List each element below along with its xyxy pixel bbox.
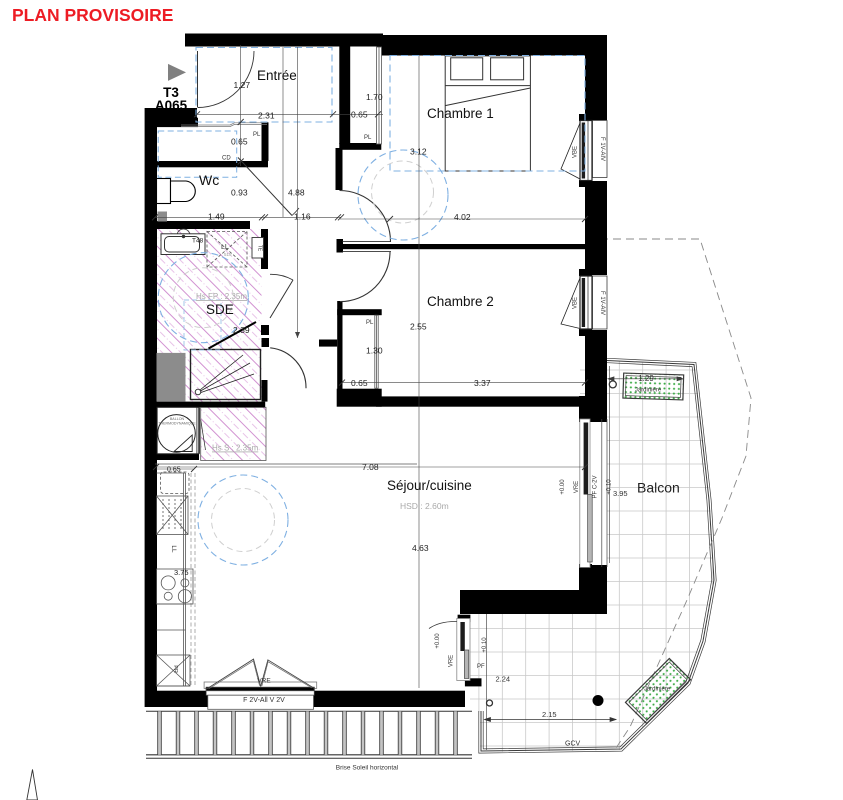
svg-text:Jardinière: Jardinière — [644, 687, 671, 693]
svg-text:PF: PF — [477, 664, 485, 670]
svg-text:515: 515 — [224, 252, 232, 257]
svg-text:3.12: 3.12 — [410, 147, 427, 157]
svg-text:1.30: 1.30 — [366, 346, 383, 356]
svg-text:2.24: 2.24 — [496, 675, 511, 684]
svg-text:1.27: 1.27 — [234, 80, 251, 90]
svg-text:LL: LL — [170, 545, 177, 553]
svg-text:PL: PL — [366, 320, 374, 326]
svg-text:BALLON: BALLON — [170, 417, 185, 421]
svg-text:VBE: VBE — [573, 146, 579, 158]
svg-text:THERMODYNAMIQUE: THERMODYNAMIQUE — [158, 422, 196, 426]
svg-text:Chambre 2: Chambre 2 — [427, 294, 494, 309]
svg-text:Hs S : 2.35m: Hs S : 2.35m — [212, 444, 259, 453]
svg-text:VRE: VRE — [257, 678, 271, 685]
svg-text:HSD : 2.60m: HSD : 2.60m — [400, 501, 449, 511]
svg-text:LL: LL — [221, 244, 229, 251]
svg-text:Hs FP : 2.35m: Hs FP : 2.35m — [196, 292, 247, 301]
svg-text:CD: CD — [222, 156, 231, 162]
svg-text:2.39: 2.39 — [233, 325, 250, 335]
svg-text:PF C-2V: PF C-2V — [593, 475, 599, 498]
svg-text:A065: A065 — [155, 98, 188, 113]
svg-text:2.15: 2.15 — [542, 710, 557, 719]
svg-text:7.08: 7.08 — [362, 462, 379, 472]
svg-text:2.55: 2.55 — [410, 322, 427, 332]
svg-text:0.65: 0.65 — [167, 467, 181, 474]
svg-text:VRE: VRE — [449, 655, 455, 667]
svg-text:1.70: 1.70 — [366, 92, 383, 102]
svg-text:Entrée: Entrée — [257, 68, 297, 83]
svg-text:Chambre 1: Chambre 1 — [427, 106, 494, 121]
svg-text:3.37: 3.37 — [474, 378, 491, 388]
svg-text:4.02: 4.02 — [454, 212, 471, 222]
svg-text:T48: T48 — [192, 238, 204, 245]
svg-text:4.63: 4.63 — [412, 543, 429, 553]
svg-text:F 1V-AIV: F 1V-AIV — [599, 291, 605, 315]
svg-text:4.88: 4.88 — [288, 188, 305, 198]
svg-text:TE: TE — [257, 245, 263, 252]
svg-text:1.49: 1.49 — [208, 211, 225, 221]
svg-text:PLAN PROVISOIRE: PLAN PROVISOIRE — [12, 5, 173, 25]
svg-text:+0.00: +0.00 — [435, 633, 441, 649]
svg-text:VBE: VBE — [573, 297, 579, 309]
svg-text:0.65: 0.65 — [231, 137, 248, 147]
svg-text:+0.00: +0.00 — [560, 479, 566, 495]
svg-text:0.65: 0.65 — [351, 110, 368, 120]
svg-text:GCV: GCV — [565, 741, 581, 748]
svg-text:1.16: 1.16 — [294, 211, 311, 221]
svg-text:+0.10: +0.10 — [482, 637, 488, 653]
svg-text:F 1V-AIV: F 1V-AIV — [599, 137, 605, 161]
svg-text:F 2V-All V 2V: F 2V-All V 2V — [243, 697, 285, 704]
svg-text:PR: PR — [172, 665, 178, 673]
svg-text:SDE: SDE — [206, 302, 234, 317]
svg-text:Balcon: Balcon — [637, 480, 680, 496]
svg-text:Séjour/cuisine: Séjour/cuisine — [387, 478, 472, 493]
svg-text:PL: PL — [253, 132, 261, 138]
svg-text:VRE: VRE — [574, 481, 580, 493]
svg-text:Jardinière: Jardinière — [635, 388, 662, 394]
svg-text:PL: PL — [364, 135, 372, 141]
svg-text:1.29: 1.29 — [638, 374, 654, 383]
svg-text:+0.10: +0.10 — [607, 479, 613, 495]
svg-text:0.93: 0.93 — [231, 188, 248, 198]
svg-text:0.65: 0.65 — [351, 378, 368, 388]
svg-text:2.31: 2.31 — [258, 111, 275, 121]
svg-text:Wc: Wc — [199, 172, 219, 188]
svg-text:3.75: 3.75 — [174, 568, 189, 577]
svg-text:3.95: 3.95 — [613, 489, 628, 498]
svg-text:Brise Soleil horizontal: Brise Soleil horizontal — [336, 765, 399, 772]
